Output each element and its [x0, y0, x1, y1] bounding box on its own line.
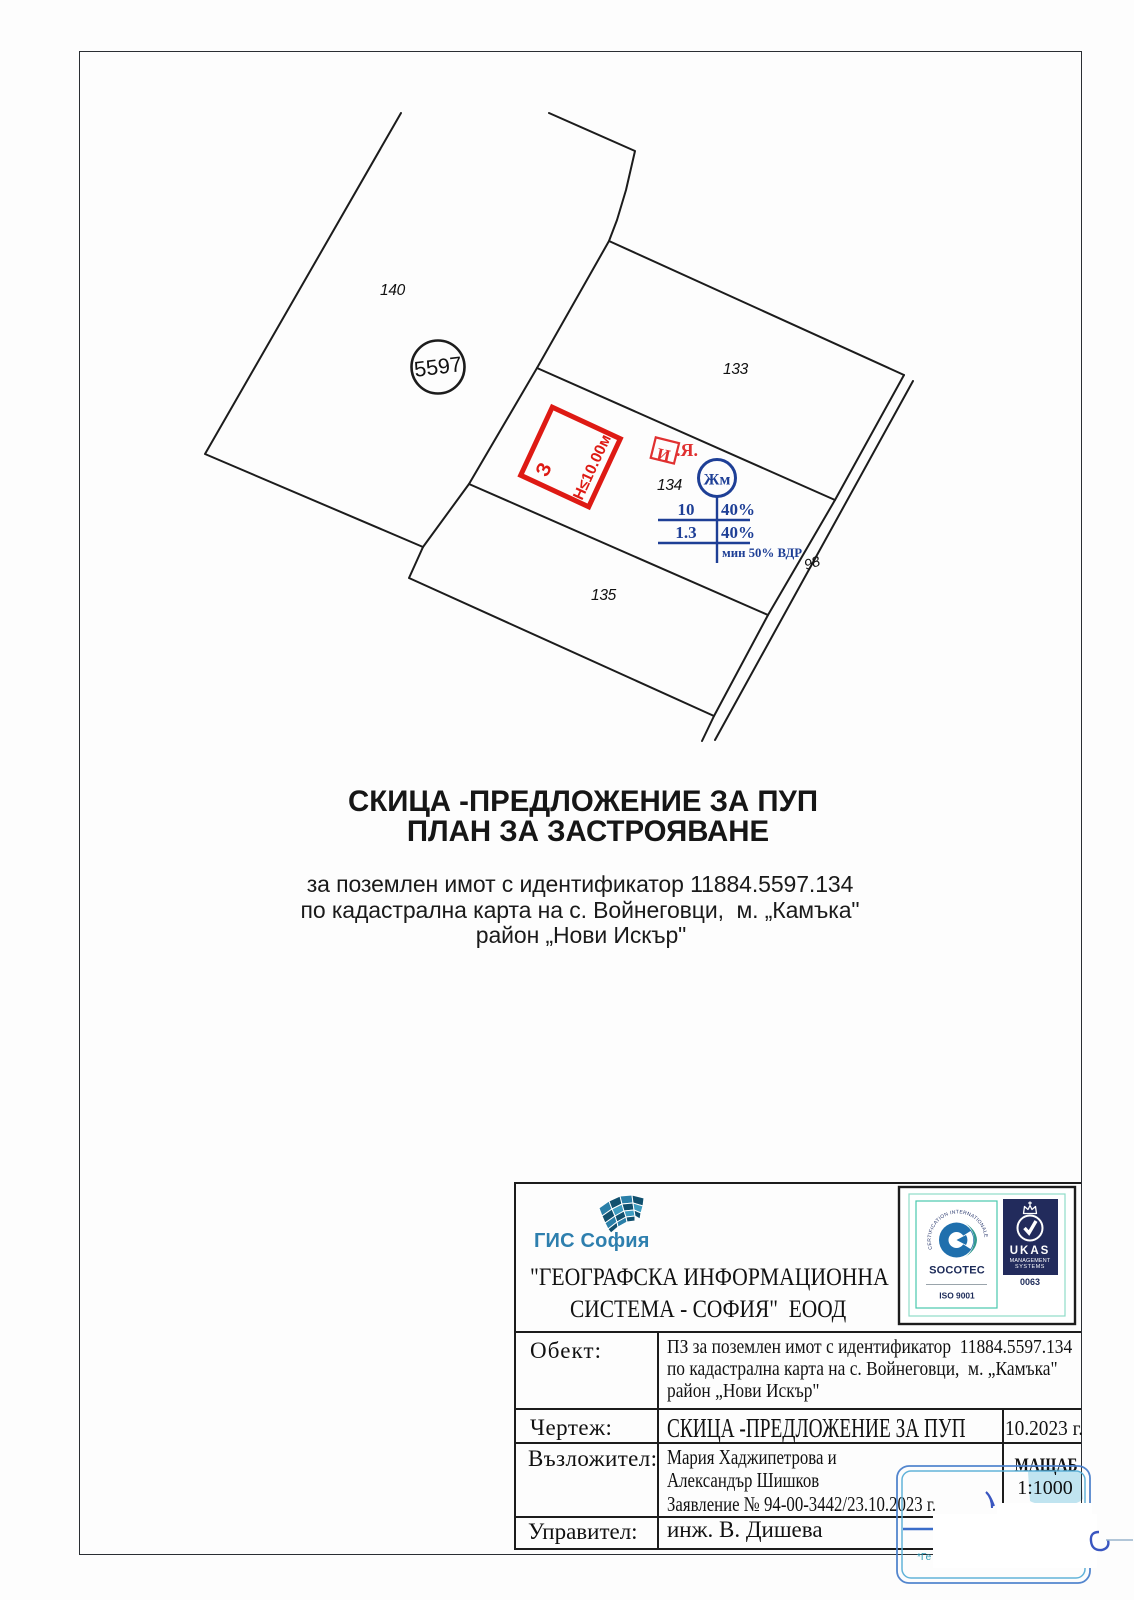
svg-text:135: 135: [591, 587, 617, 604]
svg-text:SYSTEMS: SYSTEMS: [1015, 1264, 1045, 1270]
svg-text:0063: 0063: [1020, 1277, 1040, 1287]
svg-text:134: 134: [657, 477, 683, 494]
svg-text:40%: 40%: [721, 500, 755, 519]
svg-text:1.3: 1.3: [675, 523, 696, 542]
svg-text:140: 140: [380, 282, 406, 299]
svg-text:мин 50% ВДР: мин 50% ВДР: [722, 546, 802, 560]
svg-text:98: 98: [802, 554, 822, 574]
svg-text:10: 10: [678, 500, 695, 519]
svg-text:40%: 40%: [721, 523, 755, 542]
svg-text:SOCOTEC: SOCOTEC: [929, 1265, 985, 1277]
svg-text:ISO 9001: ISO 9001: [939, 1291, 975, 1301]
svg-text:.Я.: .Я.: [676, 440, 698, 460]
svg-text:*Ге: *Ге: [917, 1552, 932, 1563]
svg-text:133: 133: [723, 361, 749, 378]
svg-text:UKAS: UKAS: [1010, 1245, 1051, 1257]
svg-text:З: З: [532, 459, 557, 480]
svg-text:5597: 5597: [413, 352, 463, 382]
svg-text:Жм: Жм: [704, 472, 731, 489]
